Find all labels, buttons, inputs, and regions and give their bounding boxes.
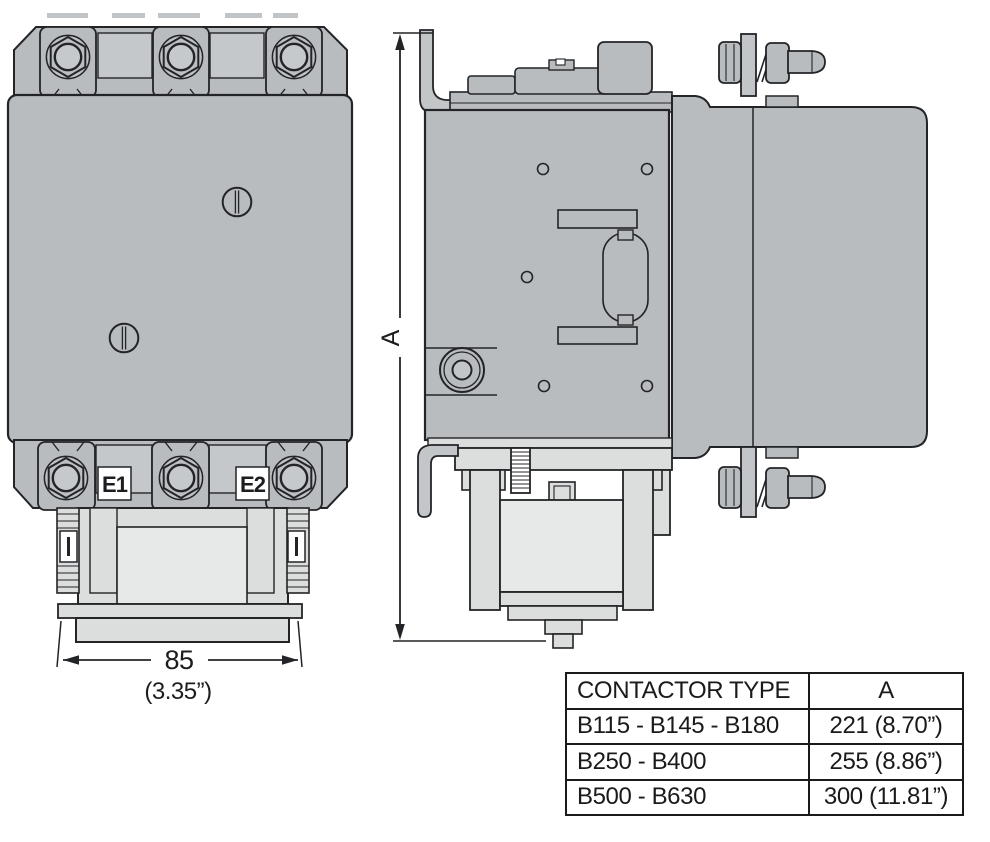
side-view: A [377, 30, 927, 648]
header-dim-a: A [810, 674, 962, 708]
terminal-bolt-icon [44, 456, 87, 499]
dim-a-cell: 255 (8.86”) [810, 745, 962, 779]
terminal-recess [98, 33, 152, 78]
terminal-bolt-icon [159, 456, 202, 499]
side-slot-lower [558, 327, 637, 344]
side-slot-upper [558, 210, 637, 228]
terminal-bolt-icon [272, 35, 315, 78]
terminal-recess [210, 33, 264, 78]
contactor-spec-table: CONTACTOR TYPE A B115 - B145 - B180 221 … [565, 672, 964, 816]
table-row: B500 - B630 300 (11.81”) [567, 779, 962, 815]
side-obround-opening [603, 233, 648, 322]
shaft-boss [440, 348, 484, 392]
dim-arrow-left-icon [63, 655, 79, 664]
cover-tab-top [766, 96, 798, 107]
contactor-type-cell: B115 - B145 - B180 [567, 710, 810, 744]
contactor-body-front [8, 95, 352, 443]
busbar-tab-marks [47, 13, 298, 18]
width-dim-mm: 85 [164, 645, 193, 675]
terminal-bolt-icon [46, 35, 89, 78]
dim-a-cell: 300 (11.81”) [810, 781, 962, 815]
e1-label: E1 [102, 472, 128, 497]
terminal-bolt-side-top [719, 34, 825, 96]
arc-chute-cover [672, 96, 927, 458]
terminal-bolt-icon [159, 35, 202, 78]
obround-notch [618, 230, 633, 240]
mounting-bracket-bottom [418, 445, 458, 517]
height-dim-label: A [377, 329, 405, 346]
top-block-small [468, 76, 515, 94]
e2-label: E2 [240, 472, 266, 497]
top-block-tall [598, 42, 652, 94]
top-tab-slot [556, 59, 565, 65]
terminal-bolt-icon [272, 456, 315, 499]
obround-notch [618, 315, 633, 325]
width-dim-inches: (3.35”) [144, 678, 211, 705]
cover-screw-icon [223, 188, 252, 217]
dim-arrow-right-icon [282, 655, 298, 664]
top-block-mid [515, 68, 608, 94]
cover-screw-icon [110, 324, 139, 353]
table-header-row: CONTACTOR TYPE A [567, 674, 962, 708]
contactor-type-cell: B500 - B630 [567, 781, 810, 815]
coil-assembly-side [428, 438, 672, 648]
dim-a-cell: 221 (8.70”) [810, 710, 962, 744]
front-view: E1 E2 [8, 13, 352, 705]
table-row: B250 - B400 255 (8.86”) [567, 743, 962, 779]
coil-assembly-front [57, 508, 309, 642]
dimension-drawing-page: E1 E2 [0, 0, 990, 842]
table-row: B115 - B145 - B180 221 (8.70”) [567, 708, 962, 744]
header-contactor-type: CONTACTOR TYPE [567, 674, 810, 708]
contactor-type-cell: B250 - B400 [567, 745, 810, 779]
dim-arrow-up-icon [395, 34, 405, 50]
cover-tab-bottom [766, 447, 798, 458]
dim-arrow-down-icon [395, 624, 405, 640]
